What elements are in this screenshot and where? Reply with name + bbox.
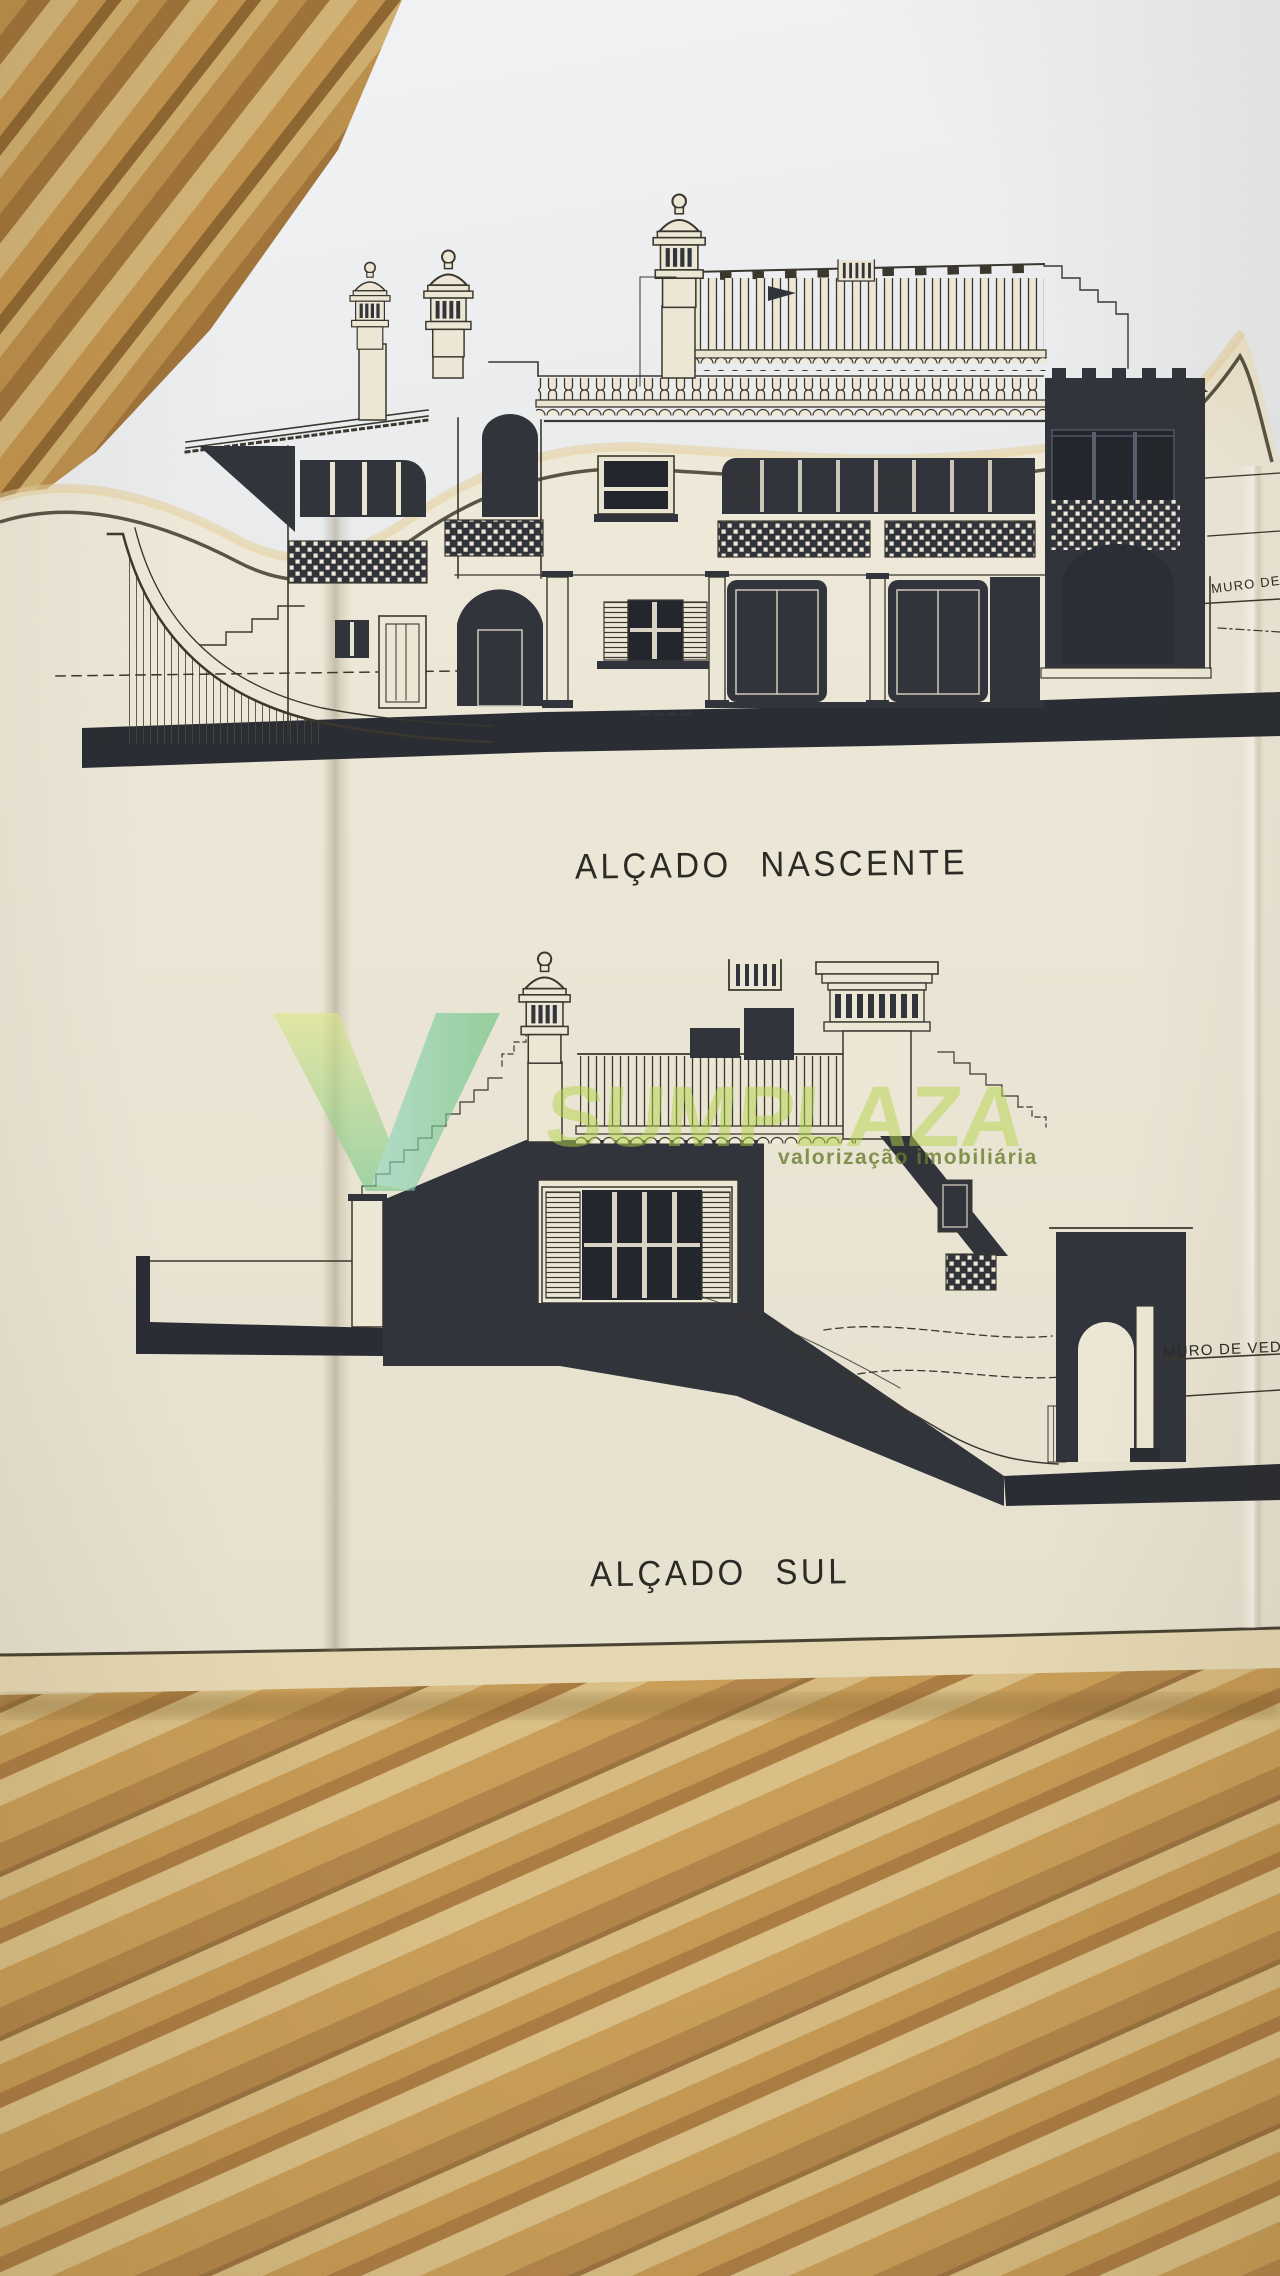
title-east-elevation: ALÇADO NASCENTE xyxy=(575,843,885,888)
watermark-tagline: valorização imobiliária xyxy=(778,1146,1038,1170)
photo-of-architectural-elevations: ALÇADO NASCENTE ALÇADO SUL MURO DE MURO … xyxy=(0,0,1280,2276)
title-south-elevation: ALÇADO SUL xyxy=(590,1551,830,1595)
